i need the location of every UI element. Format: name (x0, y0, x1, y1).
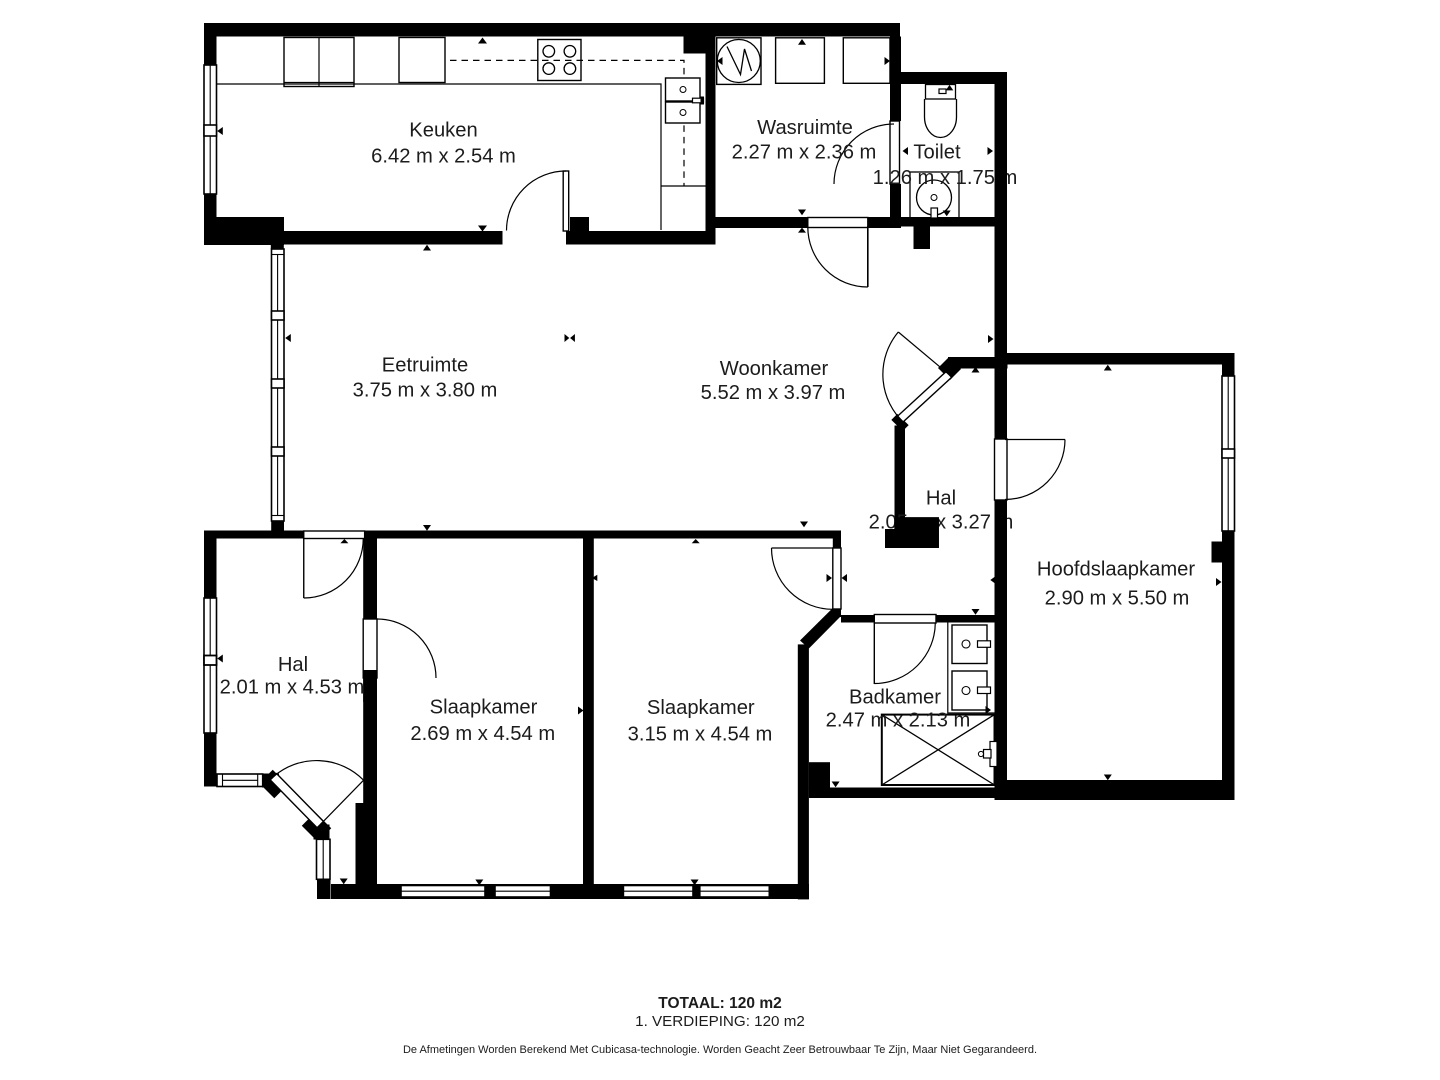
svg-text:Badkamer: Badkamer (849, 687, 941, 709)
svg-text:Keuken: Keuken (409, 120, 477, 142)
svg-text:Wasruimte: Wasruimte (757, 117, 853, 139)
svg-text:1. VERDIEPING: 120 m2: 1. VERDIEPING: 120 m2 (635, 1013, 805, 1030)
svg-text:Hal: Hal (926, 488, 956, 510)
svg-text:TOTAAL: 120 m2: TOTAAL: 120 m2 (658, 995, 781, 1012)
svg-text:5.52 m x 3.97 m: 5.52 m x 3.97 m (701, 382, 846, 404)
svg-text:Slaapkamer: Slaapkamer (430, 697, 538, 719)
svg-text:Toilet: Toilet (913, 142, 961, 164)
svg-text:2.01 m x 4.53 m: 2.01 m x 4.53 m (220, 677, 365, 699)
svg-text:3.75 m x 3.80 m: 3.75 m x 3.80 m (353, 380, 498, 402)
svg-text:3.15 m x 4.54 m: 3.15 m x 4.54 m (628, 724, 773, 746)
svg-text:Hoofdslaapkamer: Hoofdslaapkamer (1037, 559, 1195, 581)
svg-text:2.47 m x 2.13 m: 2.47 m x 2.13 m (826, 710, 971, 732)
svg-text:2.69 m x 4.54 m: 2.69 m x 4.54 m (410, 723, 555, 745)
svg-text:Hal: Hal (278, 654, 308, 676)
svg-text:De Afmetingen Worden Berekend: De Afmetingen Worden Berekend Met Cubica… (403, 1044, 1037, 1056)
svg-text:Slaapkamer: Slaapkamer (647, 697, 755, 719)
svg-text:2.90 m x 5.50 m: 2.90 m x 5.50 m (1045, 587, 1190, 609)
svg-text:Woonkamer: Woonkamer (720, 358, 829, 380)
svg-text:6.42 m x 2.54 m: 6.42 m x 2.54 m (371, 146, 516, 168)
svg-text:Eetruimte: Eetruimte (382, 355, 468, 377)
svg-text:2.27 m x 2.36 m: 2.27 m x 2.36 m (732, 142, 877, 164)
